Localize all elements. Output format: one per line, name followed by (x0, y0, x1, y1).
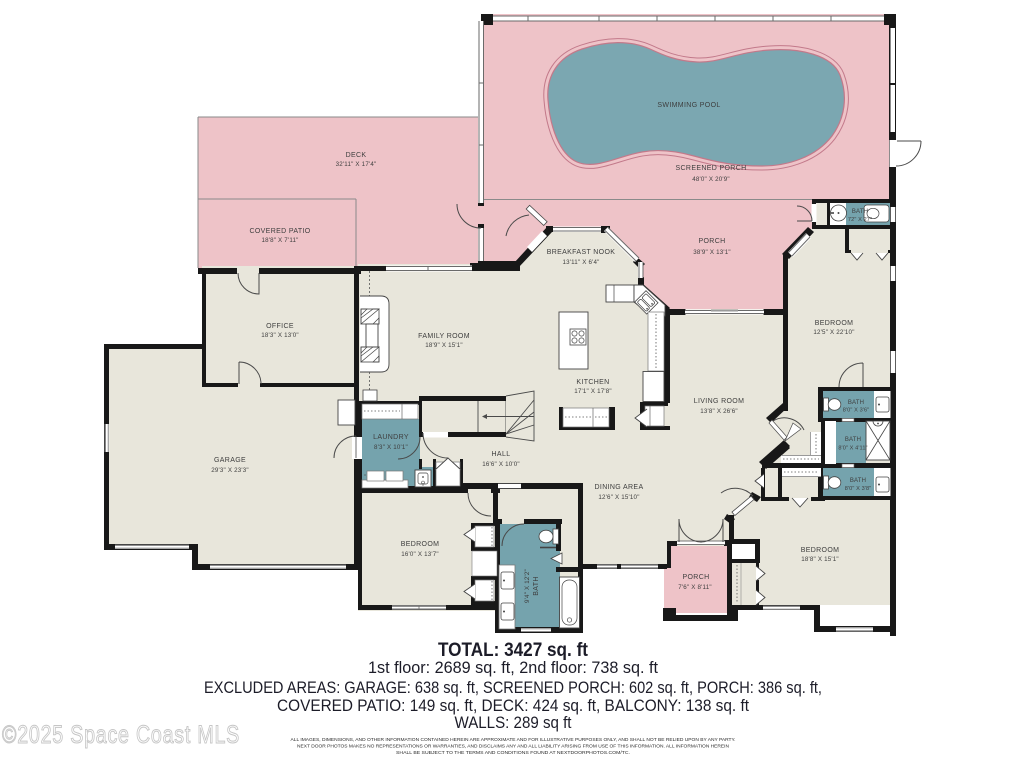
svg-text:38'9" X 13'1": 38'9" X 13'1" (693, 249, 731, 256)
svg-text:BREAKFAST NOOK: BREAKFAST NOOK (547, 249, 616, 256)
svg-text:9'4" X 12'2": 9'4" X 12'2" (524, 569, 531, 603)
svg-text:18'9" X 15'1": 18'9" X 15'1" (425, 342, 463, 349)
svg-text:ALL IMAGES, DIMENSIONS, AND OT: ALL IMAGES, DIMENSIONS, AND OTHER INFORM… (291, 737, 736, 742)
svg-text:BEDROOM: BEDROOM (815, 320, 854, 327)
svg-text:12'5" X 22'10": 12'5" X 22'10" (813, 329, 854, 336)
svg-text:13'11" X 6'4": 13'11" X 6'4" (562, 259, 599, 266)
svg-text:DECK: DECK (346, 152, 367, 159)
svg-text:8'0" X 4'11": 8'0" X 4'11" (838, 446, 867, 452)
svg-text:29'3" X 23'3": 29'3" X 23'3" (211, 467, 249, 474)
svg-text:BEDROOM: BEDROOM (401, 541, 440, 548)
svg-text:32'11" X 17'4": 32'11" X 17'4" (336, 161, 377, 168)
svg-text:TOTAL: 3427 sq. ft: TOTAL: 3427 sq. ft (438, 640, 589, 661)
svg-text:16'0" X 13'7": 16'0" X 13'7" (401, 551, 439, 558)
svg-text:LAUNDRY: LAUNDRY (373, 434, 409, 441)
svg-text:©2025 Space Coast MLS: ©2025 Space Coast MLS (2, 721, 240, 749)
svg-text:BATH: BATH (848, 400, 864, 406)
svg-text:SCREENED PORCH: SCREENED PORCH (675, 165, 746, 172)
svg-text:BATH: BATH (852, 209, 868, 215)
svg-text:1st floor: 2689 sq. ft, 2nd fl: 1st floor: 2689 sq. ft, 2nd floor: 738 s… (368, 659, 658, 677)
svg-text:18'8" X 15'1": 18'8" X 15'1" (801, 556, 839, 563)
svg-text:8'0" X 3'6": 8'0" X 3'6" (843, 408, 870, 414)
svg-text:BEDROOM: BEDROOM (801, 547, 840, 554)
svg-text:WALLS: 289 sq ft: WALLS: 289 sq ft (455, 714, 572, 732)
svg-text:KITCHEN: KITCHEN (576, 379, 609, 386)
svg-text:NEXT DOOR PHOTOS MAKES NO REPR: NEXT DOOR PHOTOS MAKES NO REPRESENTATION… (297, 744, 729, 749)
svg-text:OFFICE: OFFICE (266, 323, 294, 330)
svg-text:PORCH: PORCH (682, 574, 709, 581)
svg-text:LIVING ROOM: LIVING ROOM (694, 398, 745, 405)
svg-text:13'8" X 26'6": 13'8" X 26'6" (700, 408, 738, 415)
svg-text:18'3" X 13'0": 18'3" X 13'0" (261, 332, 299, 339)
svg-text:18'8" X 7'11": 18'8" X 7'11" (261, 237, 298, 244)
svg-text:12'6" X 15'10": 12'6" X 15'10" (598, 494, 639, 501)
svg-text:HALL: HALL (492, 451, 511, 458)
svg-text:COVERED PATIO: 149 sq. ft, DEC: COVERED PATIO: 149 sq. ft, DECK: 424 sq.… (277, 697, 749, 715)
svg-text:BATH: BATH (845, 437, 861, 443)
svg-text:8'3" X 10'1": 8'3" X 10'1" (374, 444, 408, 451)
svg-text:7'6" X 8'11": 7'6" X 8'11" (678, 584, 711, 591)
svg-text:SHALL BE SUBJECT TO THE TERMS: SHALL BE SUBJECT TO THE TERMS AND CONDIT… (396, 750, 630, 755)
svg-text:16'6" X 10'0": 16'6" X 10'0" (482, 461, 520, 468)
svg-text:72" X 27": 72" X 27" (848, 217, 872, 223)
svg-text:EXCLUDED AREAS: GARAGE: 638 sq: EXCLUDED AREAS: GARAGE: 638 sq. ft, SCRE… (204, 679, 822, 697)
svg-text:BATH: BATH (533, 576, 540, 596)
svg-text:FAMILY ROOM: FAMILY ROOM (418, 333, 470, 340)
svg-text:8'0" X 3'8": 8'0" X 3'8" (845, 486, 872, 492)
svg-text:48'0" X 20'9": 48'0" X 20'9" (692, 176, 730, 183)
svg-text:17'1" X 17'8": 17'1" X 17'8" (574, 388, 612, 395)
svg-text:PORCH: PORCH (698, 238, 725, 245)
svg-text:SWIMMING POOL: SWIMMING POOL (657, 102, 720, 109)
svg-text:BATH: BATH (850, 478, 866, 484)
svg-text:GARAGE: GARAGE (214, 457, 246, 464)
svg-text:DINING AREA: DINING AREA (595, 484, 644, 491)
svg-text:COVERED PATIO: COVERED PATIO (249, 228, 310, 235)
